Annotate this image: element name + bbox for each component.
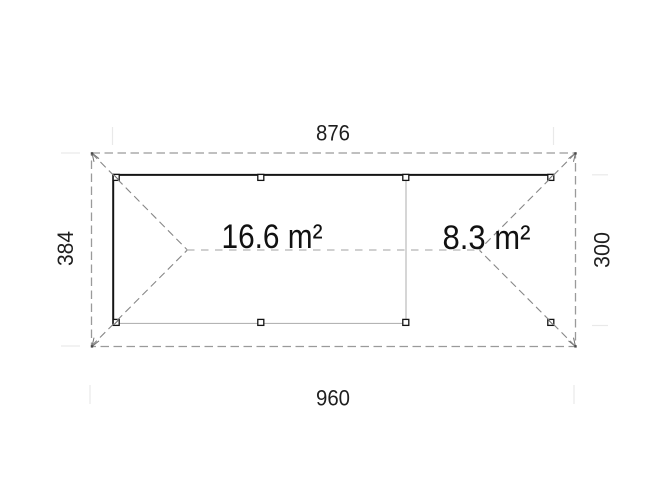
svg-text:960: 960 <box>316 386 350 411</box>
svg-text:8.3 m²: 8.3 m² <box>443 219 531 257</box>
svg-text:300: 300 <box>590 232 615 268</box>
svg-text:16.6 m²: 16.6 m² <box>222 218 323 256</box>
svg-text:384: 384 <box>53 231 78 266</box>
svg-text:876: 876 <box>316 121 350 146</box>
